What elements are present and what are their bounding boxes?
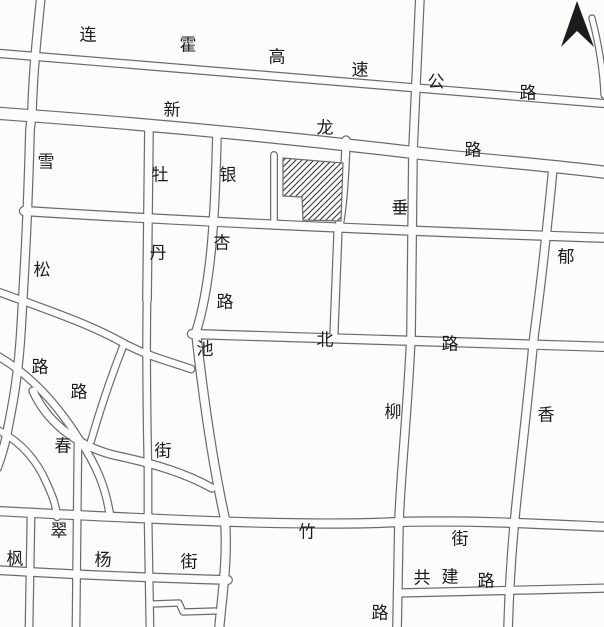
lianhuo-expressway-label: 霍 bbox=[180, 36, 197, 55]
fengyang-street-label: 街 bbox=[181, 553, 198, 572]
gongjian-road-label: 建 bbox=[442, 568, 459, 587]
chibei-road-label: 北 bbox=[317, 331, 334, 350]
hatched-site-marker bbox=[283, 158, 343, 221]
gongjian-road-label: 路 bbox=[478, 572, 495, 591]
mudan-road-label: 丹 bbox=[150, 244, 167, 263]
map-canvas: 连霍高速公路新龙路雪松牡丹银杏路垂柳郁香池北路春街翠竹街枫杨街共建路路路路 bbox=[0, 0, 604, 627]
cuizhu-street-label: 街 bbox=[452, 530, 469, 549]
chibei-road-label: 路 bbox=[442, 335, 459, 354]
yuxiang-road-label: 郁 bbox=[558, 248, 575, 267]
xinlong-road-label: 路 bbox=[465, 141, 482, 160]
bottom-left-lane-2 bbox=[76, 438, 78, 627]
chun-street-label: 街 bbox=[155, 442, 172, 461]
cuizhu-street-label: 翠 bbox=[51, 522, 68, 541]
xuesong-road-label: 松 bbox=[34, 261, 51, 280]
city-road-map: 连霍高速公路新龙路雪松牡丹银杏路垂柳郁香池北路春街翠竹街枫杨街共建路路路路 bbox=[0, 0, 604, 627]
mudan-south-ext bbox=[147, 300, 148, 514]
gongjian-road-label: 共 bbox=[414, 569, 431, 588]
fengyang-street-label: 杨 bbox=[95, 551, 112, 570]
lianhuo-expressway-label: 连 bbox=[80, 26, 97, 45]
chuiliu-road bbox=[397, 150, 413, 627]
fan-spoke bbox=[91, 344, 124, 441]
chun-street-label: 春 bbox=[55, 437, 72, 456]
lianhuo-expressway-label: 公 bbox=[428, 73, 445, 92]
chuiliu-road-label: 垂 bbox=[392, 199, 409, 218]
fan-ring-3 bbox=[0, 291, 191, 369]
bottom-left-lane-1 bbox=[29, 516, 31, 627]
mudan-road bbox=[147, 127, 149, 300]
north-arrow-icon bbox=[561, 1, 594, 47]
yuxiang-road-label: 香 bbox=[538, 406, 555, 425]
chibei-road-label: 池 bbox=[197, 340, 214, 359]
mudan-road-label: 牡 bbox=[152, 166, 169, 185]
road-label: 路 bbox=[372, 604, 389, 623]
fengyang-street-label: 枫 bbox=[7, 550, 24, 569]
lianhuo-expressway-label: 路 bbox=[520, 84, 537, 103]
xuesong-road-label: 雪 bbox=[38, 153, 55, 172]
lianhuo-expressway-label: 高 bbox=[269, 48, 286, 67]
yinxing-road-label: 银 bbox=[220, 166, 237, 185]
xinlong-road-label: 龙 bbox=[317, 119, 334, 138]
road-label: 路 bbox=[32, 358, 49, 377]
lianhuo-expressway bbox=[0, 53, 604, 104]
bottom-left-lane-3 bbox=[148, 514, 150, 627]
cuizhu-street-label: 竹 bbox=[299, 523, 316, 542]
chuiliu-road-label: 柳 bbox=[385, 403, 402, 422]
lianhuo-expressway-label: 速 bbox=[352, 61, 369, 80]
xinlong-road-label: 新 bbox=[164, 101, 181, 120]
yinxing-road-label: 路 bbox=[217, 293, 234, 312]
road-label: 路 bbox=[71, 383, 88, 402]
yinxing-road-label: 杏 bbox=[214, 234, 231, 253]
